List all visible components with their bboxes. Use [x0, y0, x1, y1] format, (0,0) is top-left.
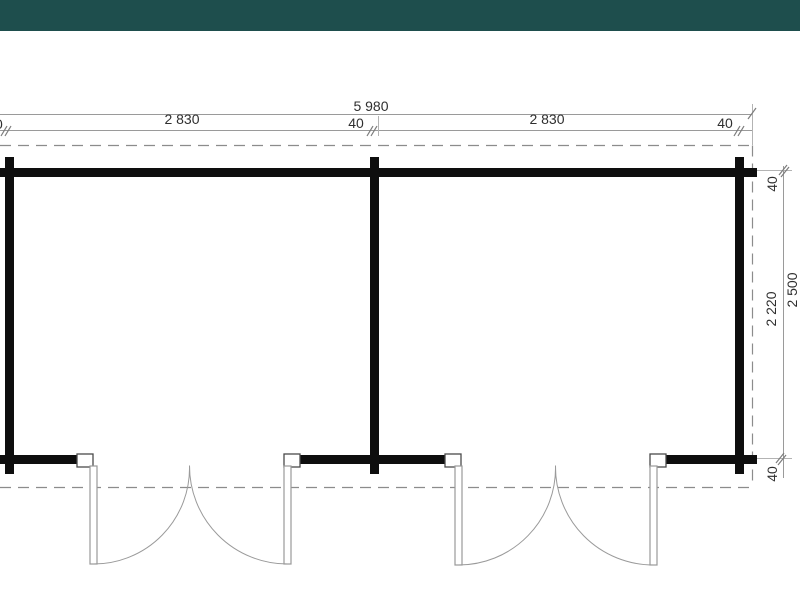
door2-left-jamb [445, 454, 461, 467]
walls [0, 157, 757, 474]
dim-label-40-middle: 40 [336, 115, 376, 131]
door-swing-arcs [94, 466, 654, 566]
extension-lines [379, 104, 793, 459]
floor-plan: 5 980 40 2 830 40 2 830 40 40 2 220 2 50… [0, 28, 800, 600]
door1-right-leaf [284, 466, 291, 564]
door-leaves [90, 466, 657, 565]
door1-left-jamb [77, 454, 93, 467]
door1-right-jamb [284, 454, 300, 467]
dim-label-2500-vertical: 2 500 [784, 260, 800, 320]
dim-label-2830-right: 2 830 [507, 111, 587, 127]
door2-right-swing-arc [555, 466, 653, 566]
floor-plan-page: 5 980 40 2 830 40 2 830 40 40 2 220 2 50… [0, 0, 800, 600]
door1-left-swing-arc [94, 466, 190, 565]
door2-right-leaf [650, 466, 657, 565]
dim-label-2220-vertical: 2 220 [763, 279, 779, 339]
door1-right-swing-arc [189, 466, 287, 565]
dim-label-40-left-cropped: 40 [0, 116, 4, 132]
dimension-ticks [1, 108, 789, 465]
wall-right [735, 157, 744, 474]
door2-left-leaf [455, 466, 462, 565]
dim-label-2830-left: 2 830 [142, 111, 222, 127]
dim-label-overall-width: 5 980 [331, 98, 411, 114]
door1-left-leaf [90, 466, 97, 564]
dim-label-40-top-vertical: 40 [764, 164, 780, 204]
wall-left [5, 157, 14, 474]
dim-label-40-right: 40 [705, 115, 745, 131]
top-header-bar [0, 0, 800, 31]
door2-left-swing-arc [459, 466, 556, 566]
wall-middle-partition [370, 157, 379, 474]
door2-right-jamb [650, 454, 666, 467]
dim-label-40-bottom-vertical: 40 [764, 454, 780, 494]
